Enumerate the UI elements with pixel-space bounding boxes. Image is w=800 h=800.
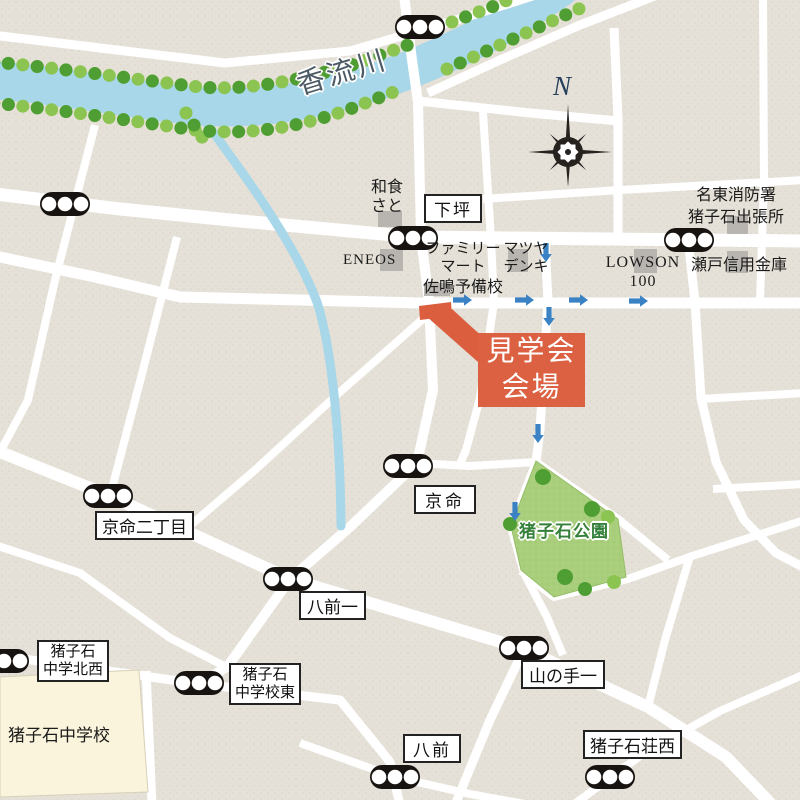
traffic-light-icon (83, 484, 133, 508)
washoku-sato-label: 和食 さと (371, 178, 403, 216)
intersection-label-inokoshi-nw: 猪子石 中学北西 (37, 640, 109, 682)
traffic-light-icon (585, 765, 635, 789)
venue-callout-line2: 会場 (501, 370, 561, 406)
matsuya-denki-label: マツヤ デンキ (502, 240, 550, 276)
venue-callout-line1: 見学会 (486, 334, 576, 370)
lawson-label: LOWSON 100 (606, 253, 680, 291)
traffic-light-icon (664, 228, 714, 252)
familymart-label: ファミリー マート (424, 240, 502, 276)
traffic-light-icon (383, 454, 433, 478)
intersection-label-kyomei: 京命 (414, 485, 476, 514)
traffic-light-icon (370, 765, 420, 789)
eneos-label: ENEOS (343, 251, 396, 269)
venue-callout: 見学会 会場 (478, 333, 585, 407)
traffic-light-icon (174, 671, 224, 695)
park-name-label: 猪子石公園 (519, 522, 609, 542)
intersection-label-hachimae-1: 八前一 (299, 591, 366, 620)
map-canvas (0, 0, 800, 800)
intersection-label-inokoshi-east: 猪子石 中学校東 (229, 663, 301, 705)
traffic-light-icon (263, 567, 313, 591)
traffic-light-icon (499, 636, 549, 660)
intersection-label-yamanote-1: 山の手一 (521, 660, 605, 689)
seto-shinkin-label: 瀬戸信用金庫 (691, 256, 787, 275)
meito-fire-station-label: 名東消防署 猪子石出張所 (688, 185, 784, 229)
intersection-label-hachimae: 八前 (403, 734, 461, 763)
guide-map: 香流川 N 和食 さと 下坪 ENEOS ファミリー マート マツヤ デンキ 佐… (0, 0, 800, 800)
sanaru-label: 佐鳴予備校 (423, 278, 503, 297)
traffic-light-icon (395, 15, 445, 39)
traffic-light-icon (40, 192, 90, 216)
compass-north-label: N (553, 70, 571, 102)
traffic-light-icon (0, 649, 29, 673)
school-name-label: 猪子石中学校 (8, 726, 110, 746)
intersection-label-shimotsubo: 下坪 (424, 194, 482, 223)
intersection-label-inokoshi-so-nishi: 猪子石荘西 (583, 730, 682, 759)
intersection-label-kyomei-2chome: 京命二丁目 (95, 511, 194, 540)
